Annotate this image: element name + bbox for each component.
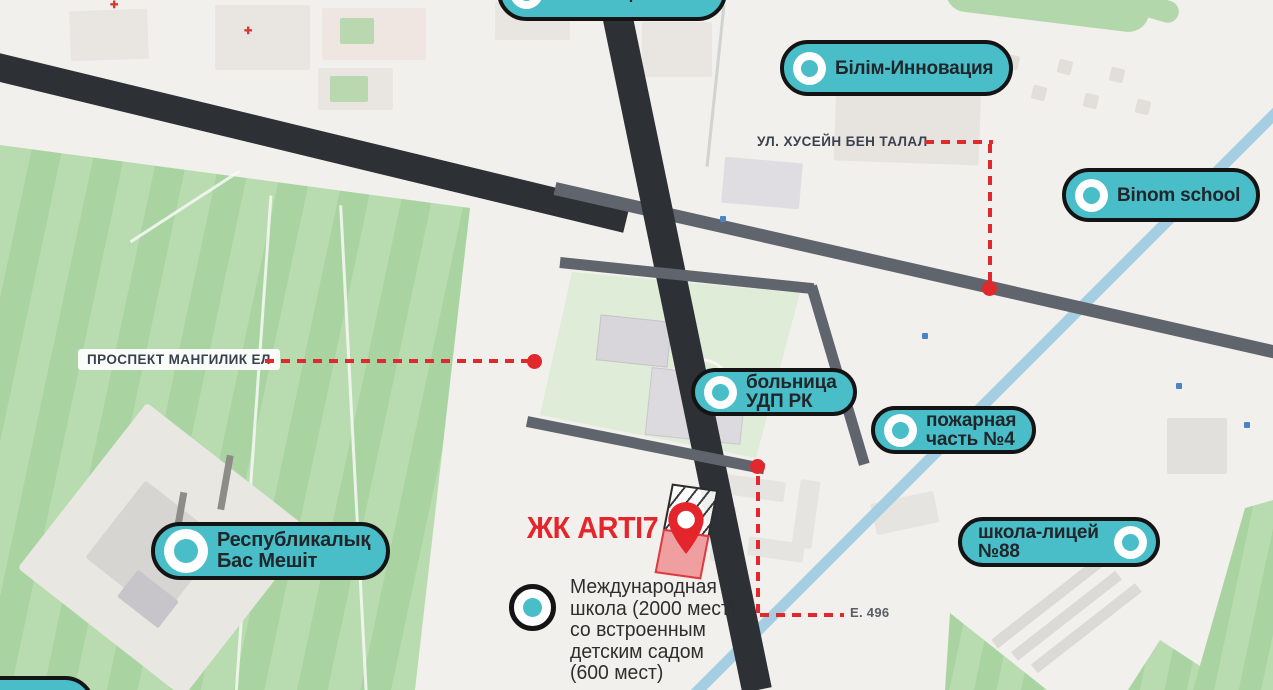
bus-stop-icon <box>720 216 726 222</box>
complex-name-label: ЖК ARTI7 <box>527 510 658 546</box>
badge-fire-station4: пожарная часть №4 <box>871 406 1036 454</box>
badge-label: больница №2 <box>552 0 679 2</box>
marker-circle-icon <box>1114 526 1147 559</box>
badge-label: №88 <box>978 542 1099 561</box>
marker-circle-icon <box>510 0 543 9</box>
route-dash <box>925 140 993 144</box>
bus-stop-icon <box>922 333 928 339</box>
street-label-text: Е. 496 <box>850 605 889 620</box>
house <box>1057 59 1074 76</box>
badge-label: Binom school <box>1117 186 1240 205</box>
residential-building <box>791 479 820 549</box>
marker-circle-icon <box>164 529 208 573</box>
hospital-cross-icon: ✚ <box>244 26 252 37</box>
badge-hospital-udp: больница УДП РК <box>691 368 857 416</box>
label-line: детским садом <box>570 642 736 664</box>
marker-circle-icon <box>704 376 737 409</box>
label-line: школа (2000 мест) <box>570 599 736 621</box>
courtyard-green <box>340 18 374 44</box>
location-pin-icon <box>664 500 708 556</box>
badge-binom-school: Binom school <box>1062 168 1260 222</box>
route-dash <box>265 359 535 363</box>
city-block <box>215 5 310 70</box>
green-wedge <box>1185 500 1273 690</box>
hospital-cross-icon: ✚ <box>110 0 118 11</box>
route-dash <box>760 613 844 617</box>
city-block <box>642 22 712 77</box>
badge-label: больница <box>746 373 837 392</box>
street-label-mangilik-el: ПРОСПЕКТ МАНГИЛИК ЕЛ <box>78 349 280 370</box>
city-block <box>69 9 149 62</box>
city-block <box>322 8 426 60</box>
label-line: (600 мест) <box>570 663 736 685</box>
marker-circle-icon <box>1075 179 1108 212</box>
campus-building <box>596 314 672 367</box>
badge-republic-mosque: Республикалық Бас Мешіт <box>151 522 390 580</box>
building <box>1167 418 1227 474</box>
house <box>1031 85 1048 102</box>
route-dash <box>988 144 992 286</box>
route-endpoint-dot <box>527 354 542 369</box>
route-endpoint-dot <box>750 459 765 474</box>
street-label-text: ПРОСПЕКТ МАНГИЛИК ЕЛ <box>87 352 271 367</box>
green-wedge <box>1128 640 1200 690</box>
complex-name-text: ЖК ARTI7 <box>527 510 658 545</box>
badge-hospital2: больница №2 <box>497 0 727 21</box>
route-dash <box>756 476 760 616</box>
badge-label: Бас Мешіт <box>217 551 370 572</box>
bus-stop-icon <box>1176 383 1182 389</box>
bus-stop-icon <box>1244 422 1250 428</box>
badge-bilim-innovation: Білім-Инновация <box>780 40 1013 96</box>
house <box>1135 99 1152 116</box>
int-school-label: Международная школа (2000 мест) со встро… <box>570 577 736 685</box>
label-line: Международная <box>570 577 736 599</box>
badge-label: часть №4 <box>926 430 1016 449</box>
badge-label: Білім-Инновация <box>835 59 993 78</box>
marker-circle-icon <box>793 52 826 85</box>
school88-building <box>991 547 1158 690</box>
badge-label: школа-лицей <box>978 523 1099 542</box>
map-canvas: ✚ ✚ ПРОСПЕКТ МАНГИЛИК ЕЛ УЛ. ХУСЕЙН БЕН … <box>0 0 1273 690</box>
badge-school-lyceum88: школа-лицей №88 <box>958 517 1160 567</box>
label-line: со встроенным <box>570 620 736 642</box>
street-label-text: УЛ. ХУСЕЙН БЕН ТАЛАЛ <box>757 134 928 149</box>
marker-circle-icon <box>509 584 556 631</box>
courtyard-green <box>330 76 368 102</box>
house <box>1109 67 1126 84</box>
street-label-husein-ben-talal: УЛ. ХУСЕЙН БЕН ТАЛАЛ <box>757 134 928 149</box>
badge-label: Республикалық <box>217 530 370 551</box>
marker-circle-icon <box>884 414 917 447</box>
route-endpoint-dot <box>982 281 997 296</box>
street-label-e496: Е. 496 <box>850 605 889 620</box>
badge-label: УДП РК <box>746 392 837 411</box>
badge-label: пожарная <box>926 411 1016 430</box>
building <box>721 157 803 210</box>
house <box>1083 93 1100 110</box>
